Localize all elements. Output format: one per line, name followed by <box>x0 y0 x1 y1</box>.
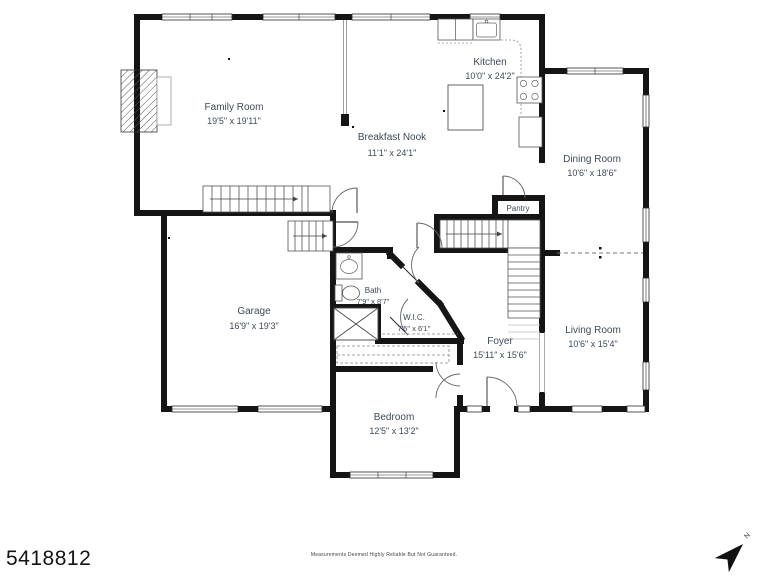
bedroom-label: Bedroom <box>374 412 415 423</box>
pantry-label: Pantry <box>506 204 529 213</box>
garage-label: Garage <box>237 306 271 317</box>
bath-dimensions: 7'9" x 8'7" <box>357 297 390 306</box>
kitchen-label: Kitchen <box>473 57 506 68</box>
family-room-dimensions: 19'5" x 19'11" <box>207 116 261 126</box>
kitchen-sink-icon <box>473 19 500 40</box>
basement-door <box>332 188 357 213</box>
north-label: N <box>743 532 752 541</box>
stove-icon <box>517 77 542 103</box>
family-room-label: Family Room <box>205 102 264 113</box>
mudroom-closet <box>337 346 449 363</box>
kitchen-dimensions: 10'0" x 24'2" <box>465 71 514 81</box>
dining-room-label: Dining Room <box>563 154 621 165</box>
windows <box>162 14 649 478</box>
bedroom-double-door <box>436 362 460 398</box>
foyer-label: Foyer <box>487 336 513 347</box>
cased-opening-dining-living <box>557 247 643 259</box>
kitchen-fixtures <box>438 19 542 147</box>
breakfast-nook-dimensions: 11'1" x 24'1" <box>368 148 417 158</box>
wic-dimensions: 7'5" x 6'1" <box>398 324 431 333</box>
wic-label: W.I.C. <box>403 313 425 322</box>
mls-number: 5418812 <box>6 547 91 571</box>
garage-entry-door <box>333 222 358 247</box>
bath-sink-icon <box>336 253 362 279</box>
kitchen-island <box>448 85 483 130</box>
pantry-door <box>503 176 525 198</box>
nook-divider-wall <box>341 20 349 126</box>
fireplace <box>121 70 171 132</box>
foyer-dimensions: 15'11" x 15'6" <box>473 350 527 360</box>
disclaimer-text: Measurements Deemed Highly Reliable But … <box>0 552 768 558</box>
floor-plan-page: Family Room 19'5" x 19'11" Breakfast Noo… <box>0 0 768 576</box>
living-room-dimensions: 10'6" x 15'4" <box>568 339 617 349</box>
base-cabinet <box>519 117 542 147</box>
staircase-main <box>440 220 540 339</box>
bath-label: Bath <box>365 286 381 295</box>
dining-room-dimensions: 10'6" x 18'6" <box>567 168 616 178</box>
front-door <box>487 377 517 407</box>
refrigerator-icon <box>438 19 473 43</box>
staircase-basement <box>203 186 330 212</box>
laundry-area <box>334 308 378 340</box>
breakfast-nook-label: Breakfast Nook <box>358 132 427 143</box>
garage-dimensions: 16'9" x 19'3" <box>229 321 278 331</box>
bedroom-dimensions: 12'5" x 13'2" <box>369 426 418 436</box>
floor-plan-svg: Family Room 19'5" x 19'11" Breakfast Noo… <box>0 0 768 576</box>
living-room-label: Living Room <box>565 325 621 336</box>
bath-fixtures <box>335 253 362 301</box>
staircase-garage <box>288 221 333 251</box>
cased-opening-foyer-living <box>540 332 545 393</box>
